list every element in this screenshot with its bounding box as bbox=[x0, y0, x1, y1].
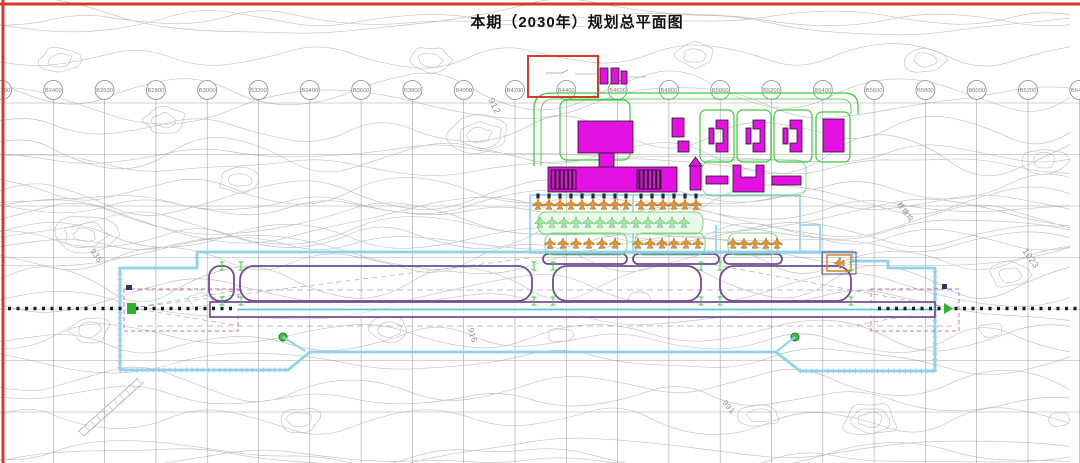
contour-path bbox=[0, 0, 1070, 463]
jet-bridge-icon bbox=[547, 194, 550, 199]
aircraft-stand-icon bbox=[566, 199, 576, 209]
grid-coordinate-label: B3800 bbox=[404, 88, 421, 94]
campus-building bbox=[716, 120, 728, 152]
grid-coordinate-label: B2800 bbox=[148, 88, 165, 94]
grid-coordinate-label: B6000 bbox=[968, 88, 985, 94]
grid-coordinate-label: B6400 bbox=[1071, 88, 1080, 94]
contour-ring-path bbox=[38, 41, 1070, 434]
campus-building bbox=[783, 128, 788, 144]
terminal-east-pier bbox=[637, 170, 661, 189]
jet-bridge-icon bbox=[569, 194, 572, 199]
jet-bridge-icon bbox=[672, 194, 675, 199]
annotations-layer bbox=[528, 56, 646, 97]
control-tower bbox=[690, 166, 701, 190]
site-plan-canvas: B2200B2400B2600B2800B3000B3200B3400B3600… bbox=[0, 0, 1080, 463]
tiny-callout-text-marks bbox=[575, 74, 646, 77]
jet-bridge-icon bbox=[624, 194, 627, 199]
aircraft-stand-icon bbox=[545, 238, 555, 248]
aircraft-stand-icon bbox=[681, 238, 691, 248]
terminal-garage bbox=[578, 121, 633, 153]
airside-building bbox=[706, 176, 728, 184]
aircraft-stand-icon bbox=[577, 199, 587, 209]
aircraft-stand-icon bbox=[728, 238, 738, 248]
aircraft-stand-icon bbox=[597, 238, 607, 248]
aircraft-stand-icon bbox=[636, 199, 646, 209]
aircraft-stand-icon bbox=[610, 199, 620, 209]
east-threshold-marker bbox=[944, 303, 953, 314]
aircraft-stand-icon bbox=[657, 238, 667, 248]
aircraft-stand-icon bbox=[555, 199, 565, 209]
navaid-marker-east bbox=[942, 284, 947, 289]
jet-bridge-icon bbox=[694, 194, 697, 199]
aircraft-stand-icon bbox=[588, 199, 598, 209]
jet-bridge-icon bbox=[580, 194, 583, 199]
terminal-west-pier bbox=[551, 170, 576, 189]
jet-bridge-icon bbox=[536, 194, 539, 199]
jet-bridge-icon bbox=[591, 194, 594, 199]
terrain-label: 991 bbox=[720, 399, 736, 416]
airside-building bbox=[772, 176, 801, 185]
jet-bridge-icon bbox=[602, 194, 605, 199]
campus-building bbox=[823, 119, 844, 152]
boundary-hatch-ticks bbox=[120, 268, 935, 371]
jet-bridge-icon bbox=[650, 194, 653, 199]
jet-bridge-icon bbox=[639, 194, 642, 199]
coordinate-grid: B2200B2400B2600B2800B3000B3200B3400B3600… bbox=[0, 81, 1080, 463]
terrain-contour-lines bbox=[0, 0, 1070, 463]
aircraft-stand-icon bbox=[533, 199, 543, 209]
campus-building bbox=[746, 128, 751, 144]
grid-coordinate-label: B5800 bbox=[917, 88, 934, 94]
grid-coordinate-label: B3200 bbox=[250, 88, 267, 94]
taxiway-junction-marks bbox=[220, 262, 854, 305]
jet-bridge-icon bbox=[683, 194, 686, 199]
aircraft-stand-icon bbox=[571, 238, 581, 248]
site-plan-drawing: 本期（2030年）规划总平面图 B2200B2400B2600B2800B300… bbox=[0, 0, 1080, 463]
annotation-leader-line bbox=[546, 70, 568, 73]
aircraft-stand-icon bbox=[645, 238, 655, 248]
aircraft-stand-icon bbox=[633, 238, 643, 248]
junction-mark-icon bbox=[532, 262, 537, 270]
grid-coordinate-label: B5600 bbox=[866, 88, 883, 94]
grid-coordinate-label: B6200 bbox=[1020, 88, 1037, 94]
airside-building bbox=[733, 165, 764, 192]
campus-building bbox=[753, 120, 765, 152]
support-building bbox=[672, 118, 684, 137]
west-threshold-marker bbox=[127, 303, 136, 314]
jet-bridge-icon bbox=[558, 194, 561, 199]
grid-coordinate-label: B3000 bbox=[199, 88, 216, 94]
terrain-label: 桂塘坞 bbox=[895, 200, 915, 224]
aircraft-stand-icon bbox=[693, 238, 703, 248]
grid-coordinate-label: B4000 bbox=[455, 88, 472, 94]
terrain-label: 912 bbox=[486, 96, 502, 115]
navaid-marker-west bbox=[126, 285, 132, 290]
north-building bbox=[600, 68, 608, 84]
junction-mark-icon bbox=[239, 262, 244, 270]
aircraft-stand-icon bbox=[772, 238, 782, 248]
support-building bbox=[678, 141, 689, 152]
campus-building bbox=[709, 128, 714, 144]
grid-coordinate-label: B2600 bbox=[96, 88, 113, 94]
jet-bridge-icon bbox=[613, 194, 616, 199]
aircraft-stand-icon bbox=[584, 238, 594, 248]
campus-building bbox=[790, 120, 802, 152]
grid-coordinate-label: B4200 bbox=[507, 88, 524, 94]
aircraft-stand-icon bbox=[761, 238, 771, 248]
aircraft-stand-icon bbox=[750, 238, 760, 248]
aircraft-stand-icon bbox=[691, 199, 701, 209]
parallel-taxiway-system bbox=[209, 254, 851, 301]
drawing-title: 本期（2030年）规划总平面图 bbox=[470, 11, 683, 32]
junction-mark-icon bbox=[849, 262, 854, 270]
grid-coordinate-label: B3400 bbox=[301, 88, 318, 94]
grid-coordinate-label: B2400 bbox=[45, 88, 62, 94]
aircraft-stand-icon bbox=[739, 238, 749, 248]
grid-coordinate-label: B3600 bbox=[353, 88, 370, 94]
aircraft-stand-icon bbox=[669, 199, 679, 209]
terrain-label: 916 bbox=[466, 327, 479, 344]
terminal-connector bbox=[599, 153, 614, 168]
north-building bbox=[621, 71, 627, 84]
north-building bbox=[611, 68, 619, 84]
jet-bridge-icon bbox=[661, 194, 664, 199]
aircraft-stand-icon bbox=[669, 238, 679, 248]
junction-mark-icon bbox=[718, 262, 723, 270]
